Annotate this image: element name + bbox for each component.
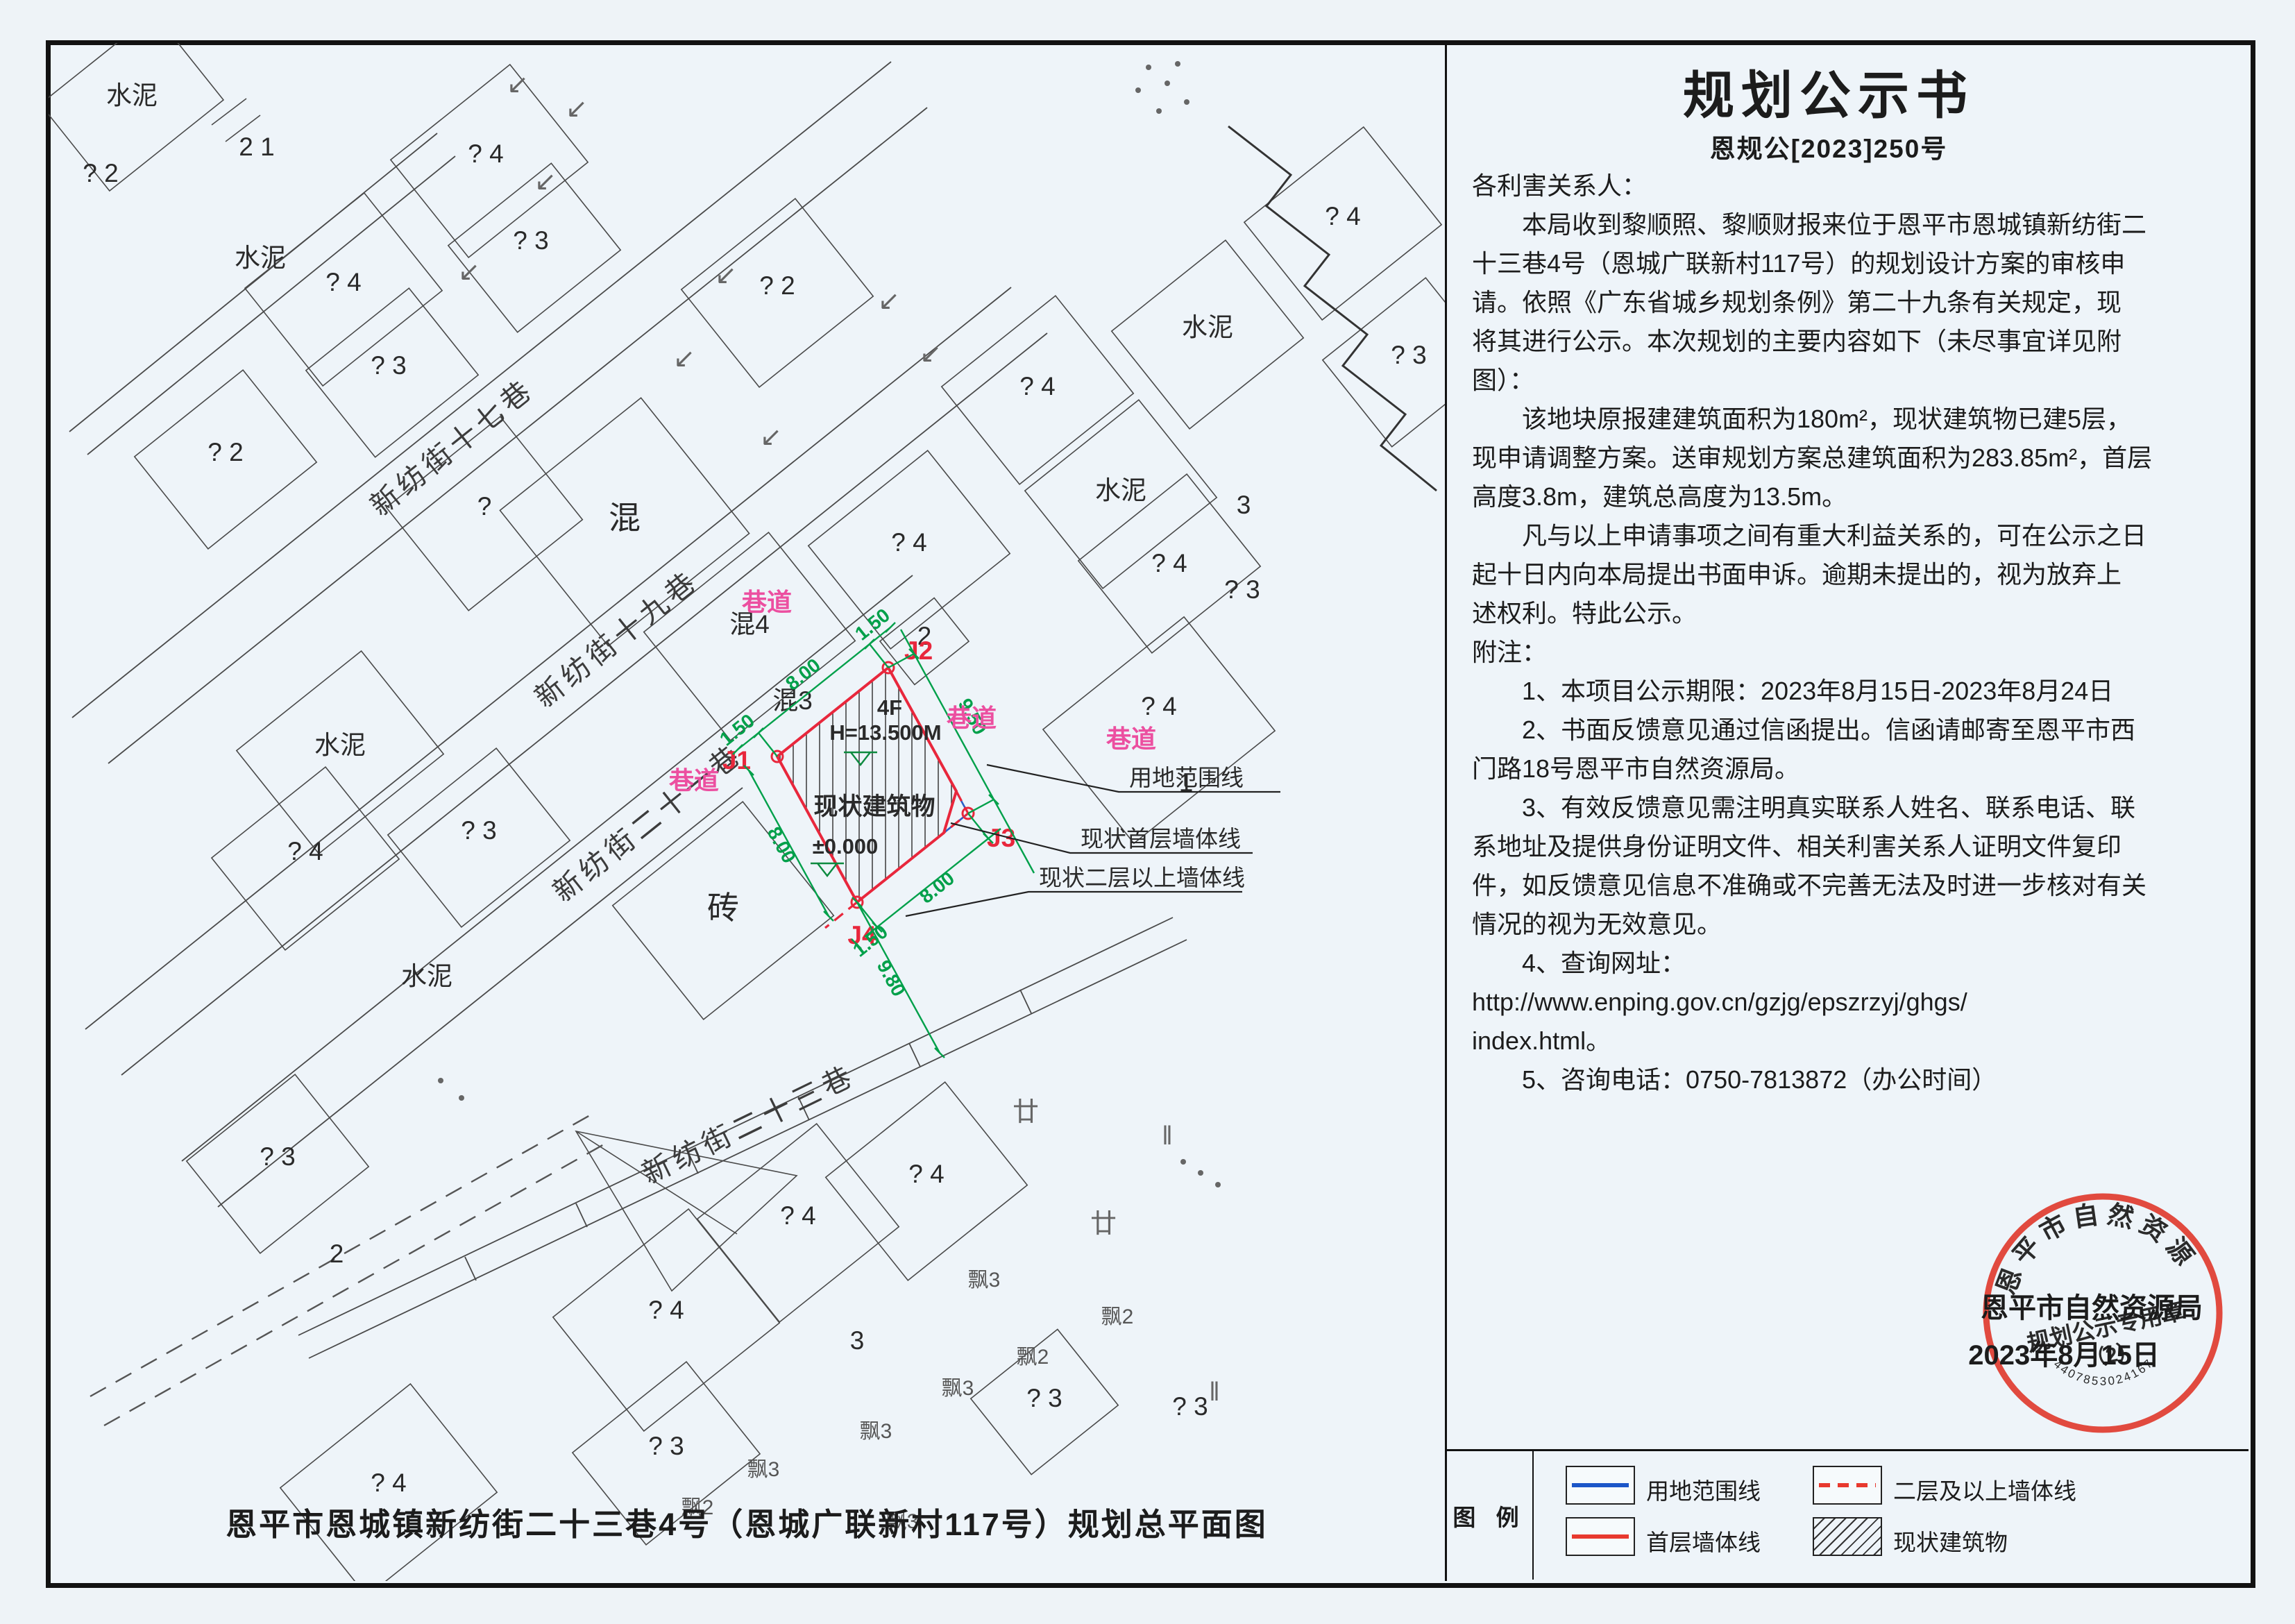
plot-mark: ? 4 [1141,692,1176,720]
site-plan-map: 新纺街十七巷 新纺街十九巷 新纺街二十一巷 新纺街二十三巷 水泥 ? 2 2 1… [49,43,1445,1581]
callout-label: 现状首层墙体线 [1081,826,1241,852]
plot-labels: 水泥 ? 2 2 1 ? 4 ? 3 ? 4 ? 3 ? 2 水泥 混 ? 2 … [83,81,1426,1533]
red-line-icon [1572,1534,1629,1539]
plot-mark: ? 4 [891,528,926,557]
legend-symbol-upper-wall [1813,1466,1882,1505]
plot-mark: ? 2 [759,271,795,300]
legend-divider [1532,1450,1534,1580]
material-label: 水泥 [235,244,286,272]
signature-org: 恩平市自然资源局 [1981,1285,2203,1326]
material-label: 水泥 [401,962,452,990]
plot-mark: ? 4 [371,1469,406,1497]
fence-mark: ‖ [1162,1122,1173,1151]
legend-label: 现状建筑物 [1893,1524,2008,1557]
material-label: 水泥 [1182,313,1233,341]
plot-mark: ? 2 [83,159,118,187]
plot-mark: ? 4 [287,837,323,865]
plot-mark: ? 4 [780,1201,815,1230]
material-label: 水泥 [314,731,366,759]
arrow-icon: ↙ [715,261,737,290]
survey-marks: ↙ ↙ ↙ ↙ ↙ ↙ ↙ ↙ ↙ [438,61,1221,1187]
building-label: 现状建筑物 [813,793,935,820]
plot-mark: ? 2 [208,438,243,466]
fence-mark: 廿 [1090,1210,1117,1239]
scanned-notice-page: 新纺街十七巷 新纺街十九巷 新纺街二十一巷 新纺街二十三巷 水泥 ? 2 2 1… [0,0,2295,1624]
dim-label: 8.00 [763,823,800,867]
plot-mark: 飘3 [860,1420,892,1443]
arrow-icon: ↙ [458,257,480,287]
plot-mark: 3 [850,1326,865,1355]
plot-mark: 飘3 [968,1269,1001,1292]
legend-label: 首层墙体线 [1646,1524,1761,1557]
fence-mark: ‖ [1209,1378,1220,1407]
plot-mark: 飘2 [1017,1346,1049,1369]
plot-mark: ? [477,492,492,521]
legend-label: 用地范围线 [1646,1473,1761,1506]
callout-label: 用地范围线 [1129,765,1244,790]
material-label: 水泥 [1095,476,1146,505]
floors-label: 4F [877,695,902,720]
plot-mark: ? 4 [648,1296,684,1324]
dim-label: 1.50 [851,604,894,644]
plot-mark: ? 4 [1019,372,1055,400]
legend-symbol-first-wall [1566,1517,1635,1556]
street-label: 新纺街二十三巷 [637,1059,861,1190]
dim-label: 9.80 [873,956,910,1000]
cadastral-plots [49,43,1445,1581]
level-label: ±0.000 [813,834,879,858]
plot-mark: ? 4 [1325,202,1360,230]
plot-mark: ? 4 [325,268,361,296]
dim-label: 8.00 [915,867,958,907]
plot-mark: ? 3 [513,226,548,255]
lane-label: 巷道 [668,766,719,795]
notice-panel: 规划公示书 恩规公[2023]250号 各利害关系人： 本局收到黎顺照、黎顺财报… [1447,43,2249,1581]
map-caption: 恩平市恩城镇新纺街二十三巷4号（恩城广联新村117号）规划总平面图 [49,1499,1445,1544]
height-label: H=13.500M [829,720,941,745]
lane-label: 巷道 [741,588,792,616]
arrow-icon: ↙ [878,287,900,316]
lane-label: 巷道 [946,704,997,732]
material-label: 砖 [707,890,739,926]
plot-mark: ? 3 [648,1432,684,1460]
arrow-icon: ↙ [920,339,942,369]
signature-date: 2023年8月15日 [1968,1333,2160,1373]
plot-mark: 飘3 [942,1377,974,1400]
plot-mark: ? 3 [1026,1384,1062,1412]
legend-symbol-boundary [1566,1466,1635,1505]
material-label: 水泥 [106,81,158,110]
blue-line-icon [1572,1483,1629,1487]
plot-mark: ? 3 [461,816,496,845]
plot-mark: ? 4 [468,139,503,168]
plot-mark: 飘2 [1101,1305,1134,1328]
arrow-icon: ↙ [760,423,782,452]
plot-mark: ? 3 [260,1142,295,1171]
street-label: 新纺街十九巷 [529,564,705,714]
arrow-icon: ↙ [507,70,529,99]
arrow-icon: ↙ [566,94,588,124]
legend-symbol-existing-building [1813,1517,1882,1556]
callout-label: 现状二层以上墙体线 [1039,865,1245,890]
notice-body: 各利害关系人： 本局收到黎顺照、黎顺财报来位于恩平市恩城镇新纺街二 十三巷4号（… [1472,167,2227,1099]
plot-mark: ? 3 [1172,1392,1208,1421]
plot-mark: 3 [1237,491,1251,519]
plot-mark: ? 3 [1391,341,1426,369]
plot-mark: 2 [330,1240,344,1268]
notice-doc-number: 恩规公[2023]250号 [1447,128,2210,165]
fence-mark: 廿 [1013,1098,1039,1127]
plot-mark: ? 4 [1151,549,1187,577]
lane-label: 巷道 [1106,725,1156,753]
arrow-icon: ↙ [673,344,695,373]
street-label: 新纺街二十一巷 [547,738,749,908]
plot-mark: ? 4 [908,1160,944,1188]
plot-mark: 飘3 [747,1458,780,1481]
notice-title: 规划公示书 [1447,54,2210,128]
plot-mark: ? 3 [371,351,406,380]
plot-mark: ? 3 [1224,575,1260,604]
plot-mark: 2 1 [239,133,274,161]
material-label: 混 [609,500,641,536]
arrow-icon: ↙ [534,167,557,196]
legend-title: 图 例 [1447,1499,1532,1532]
red-dashed-line-icon [1819,1483,1876,1487]
